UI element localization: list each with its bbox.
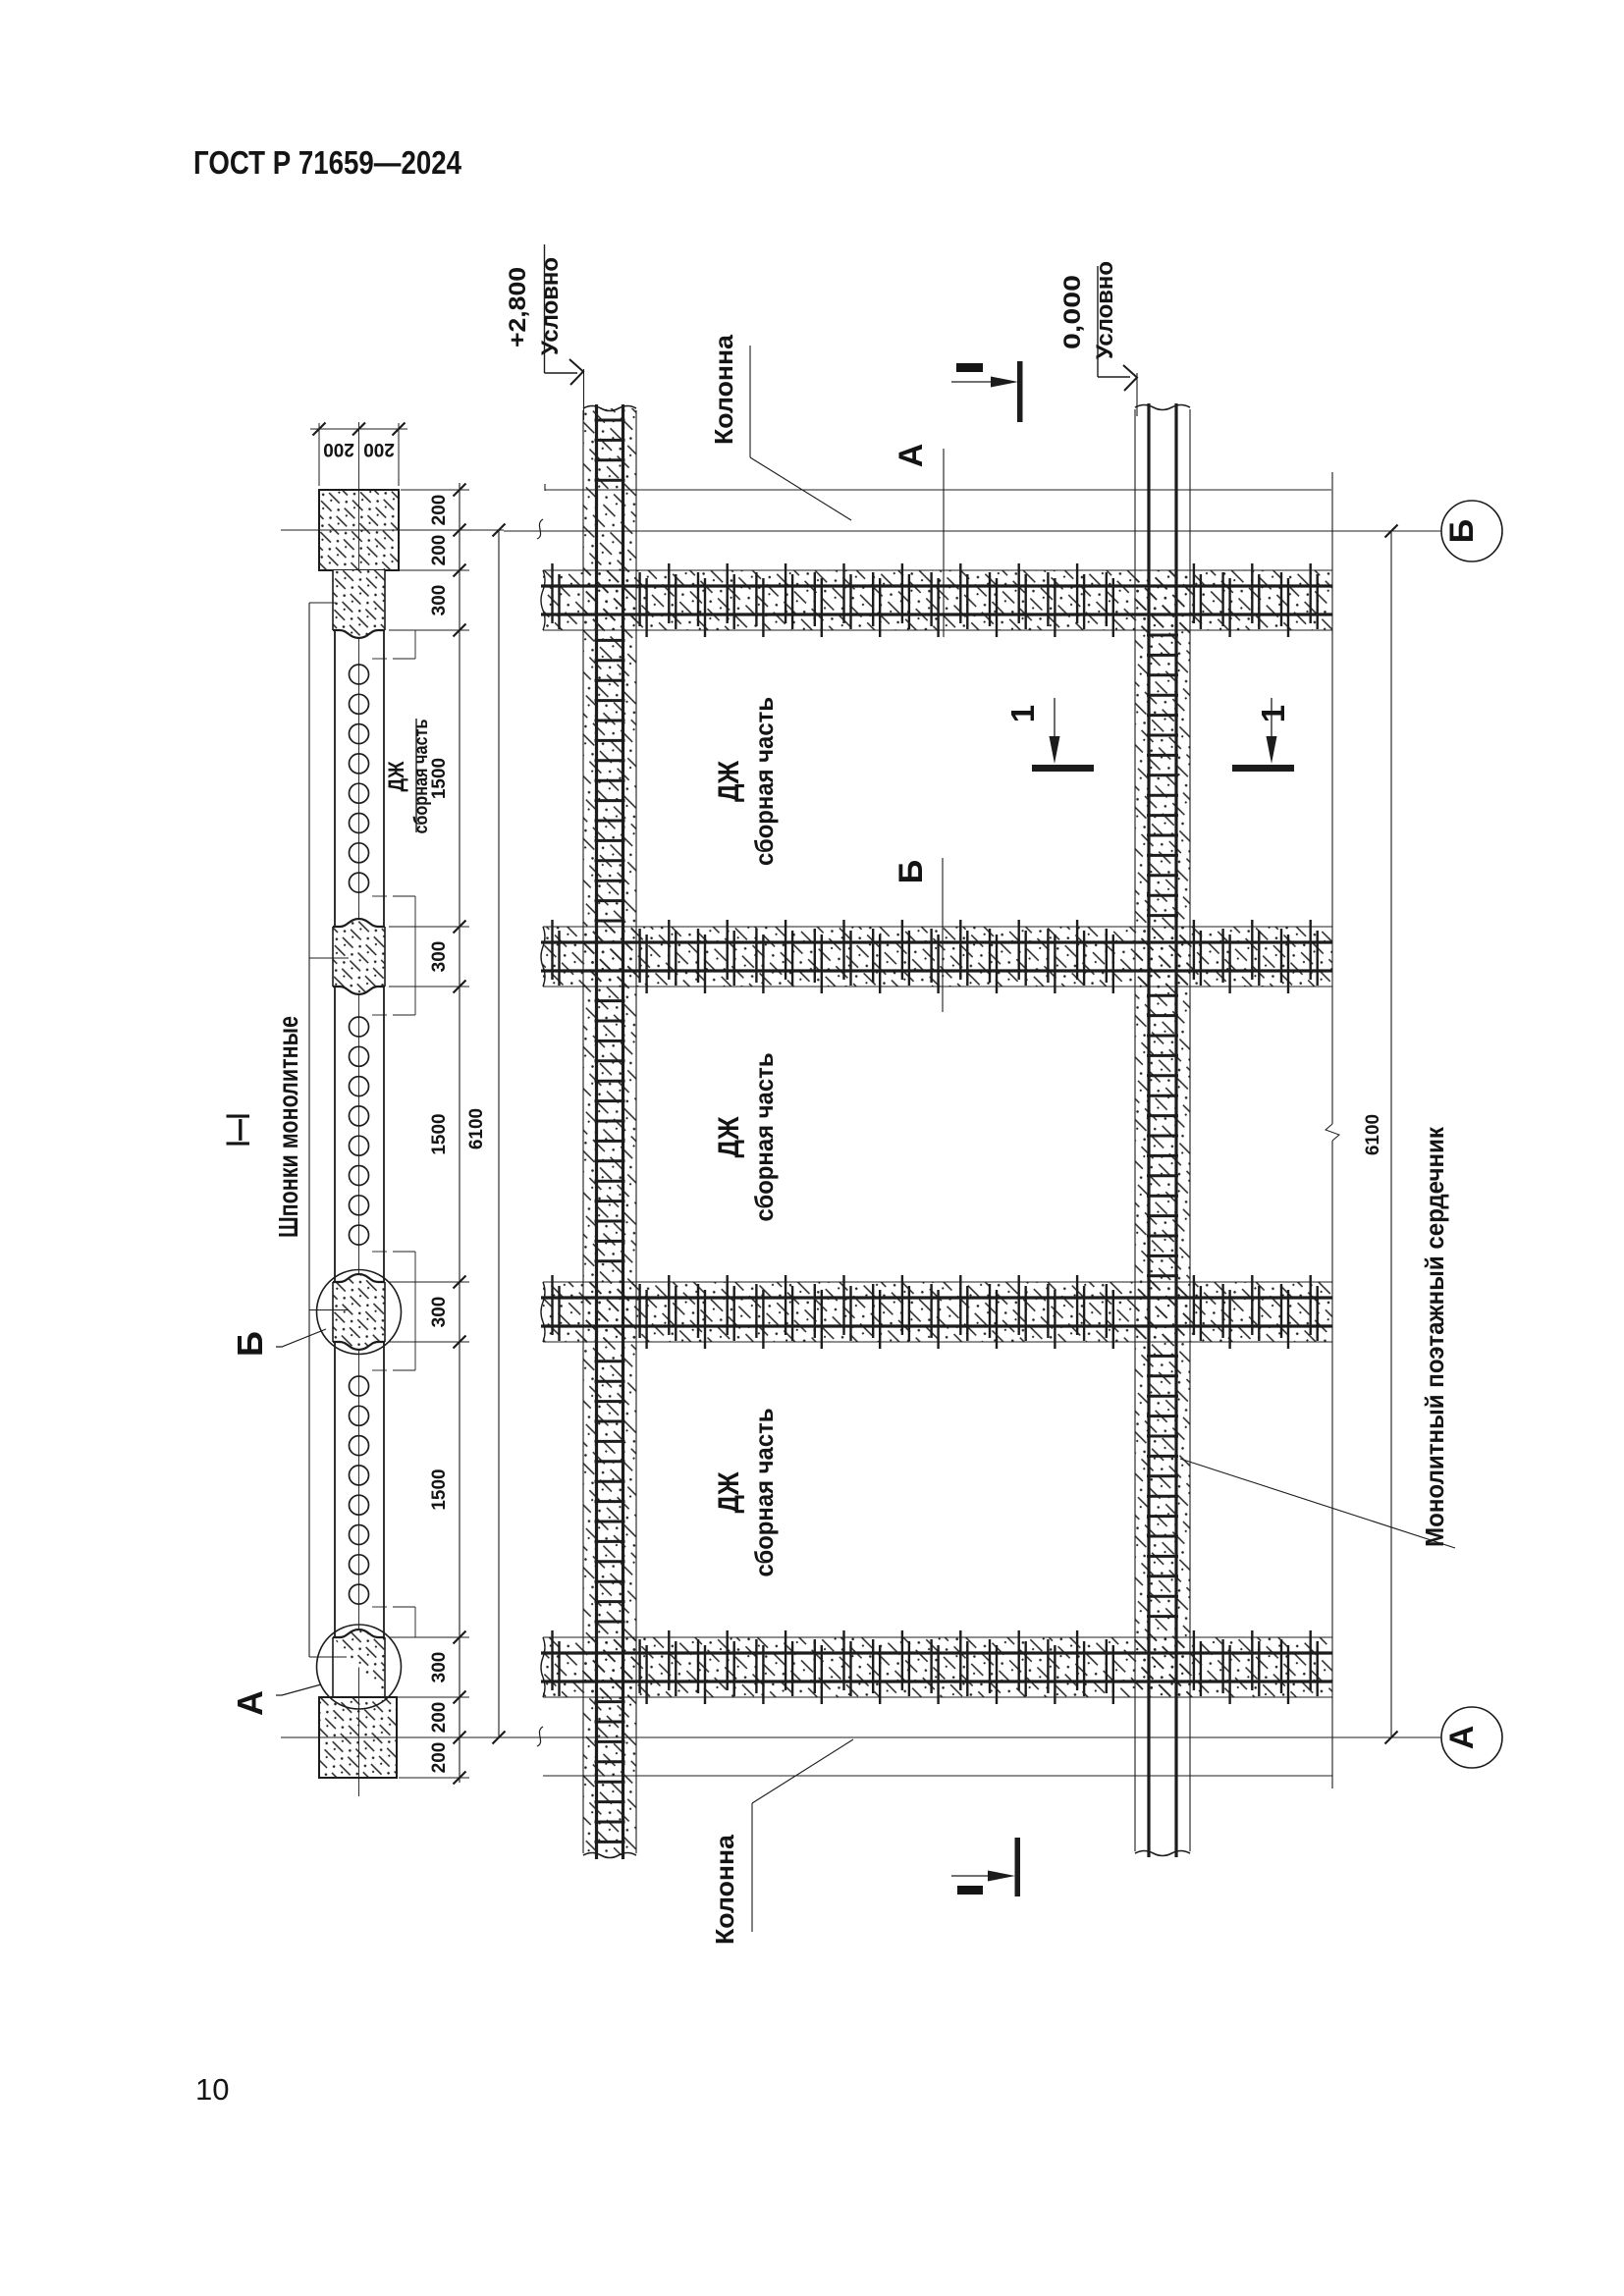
- svg-text:ГОСТ Р 71659—2024: ГОСТ Р 71659—2024: [193, 144, 462, 181]
- svg-text:Колонна: Колонна: [709, 334, 738, 445]
- svg-text:200: 200: [429, 1742, 450, 1774]
- svg-text:6100: 6100: [466, 1108, 487, 1149]
- svg-text:А: А: [1443, 1726, 1481, 1750]
- svg-text:сборная часть: сборная часть: [749, 1409, 779, 1577]
- svg-text:ДЖ: ДЖ: [713, 1116, 745, 1158]
- svg-text:Б: Б: [230, 1331, 270, 1357]
- svg-text:1500: 1500: [429, 758, 450, 799]
- svg-text:+2,800: +2,800: [505, 267, 531, 347]
- svg-text:сборная часть: сборная часть: [749, 1053, 779, 1222]
- svg-text:1500: 1500: [429, 1468, 450, 1510]
- svg-text:Условно: Условно: [537, 257, 564, 355]
- svg-text:А: А: [893, 444, 930, 468]
- svg-text:1: 1: [1004, 705, 1041, 722]
- svg-text:Условно: Условно: [1092, 261, 1118, 359]
- svg-text:ДЖ: ДЖ: [713, 760, 745, 802]
- svg-text:сборная часть: сборная часть: [749, 697, 779, 866]
- svg-text:Шпонки монолитные: Шпонки монолитные: [273, 1016, 303, 1238]
- svg-text:ДЖ: ДЖ: [384, 761, 408, 791]
- svg-text:6100: 6100: [1363, 1114, 1383, 1155]
- svg-text:200: 200: [323, 439, 354, 459]
- svg-text:Колонна: Колонна: [710, 1834, 739, 1945]
- svg-text:300: 300: [429, 941, 450, 973]
- svg-text:0,000: 0,000: [1059, 275, 1086, 349]
- svg-text:ДЖ: ДЖ: [713, 1471, 745, 1514]
- svg-text:А: А: [230, 1690, 270, 1716]
- svg-text:10: 10: [195, 2072, 229, 2107]
- svg-text:1500: 1500: [429, 1113, 450, 1154]
- svg-text:I—I: I—I: [220, 1113, 257, 1147]
- svg-text:Монолитный поэтажный сердечник: Монолитный поэтажный сердечник: [1420, 1126, 1449, 1547]
- svg-text:200: 200: [429, 535, 450, 566]
- svg-text:200: 200: [363, 439, 395, 459]
- svg-text:Б: Б: [893, 860, 930, 883]
- svg-text:200: 200: [429, 1702, 450, 1734]
- svg-text:Б: Б: [1443, 519, 1481, 543]
- svg-text:200: 200: [429, 495, 450, 526]
- svg-text:300: 300: [429, 585, 450, 616]
- svg-text:300: 300: [429, 1652, 450, 1683]
- svg-text:300: 300: [429, 1297, 450, 1328]
- svg-text:1: 1: [1255, 705, 1291, 722]
